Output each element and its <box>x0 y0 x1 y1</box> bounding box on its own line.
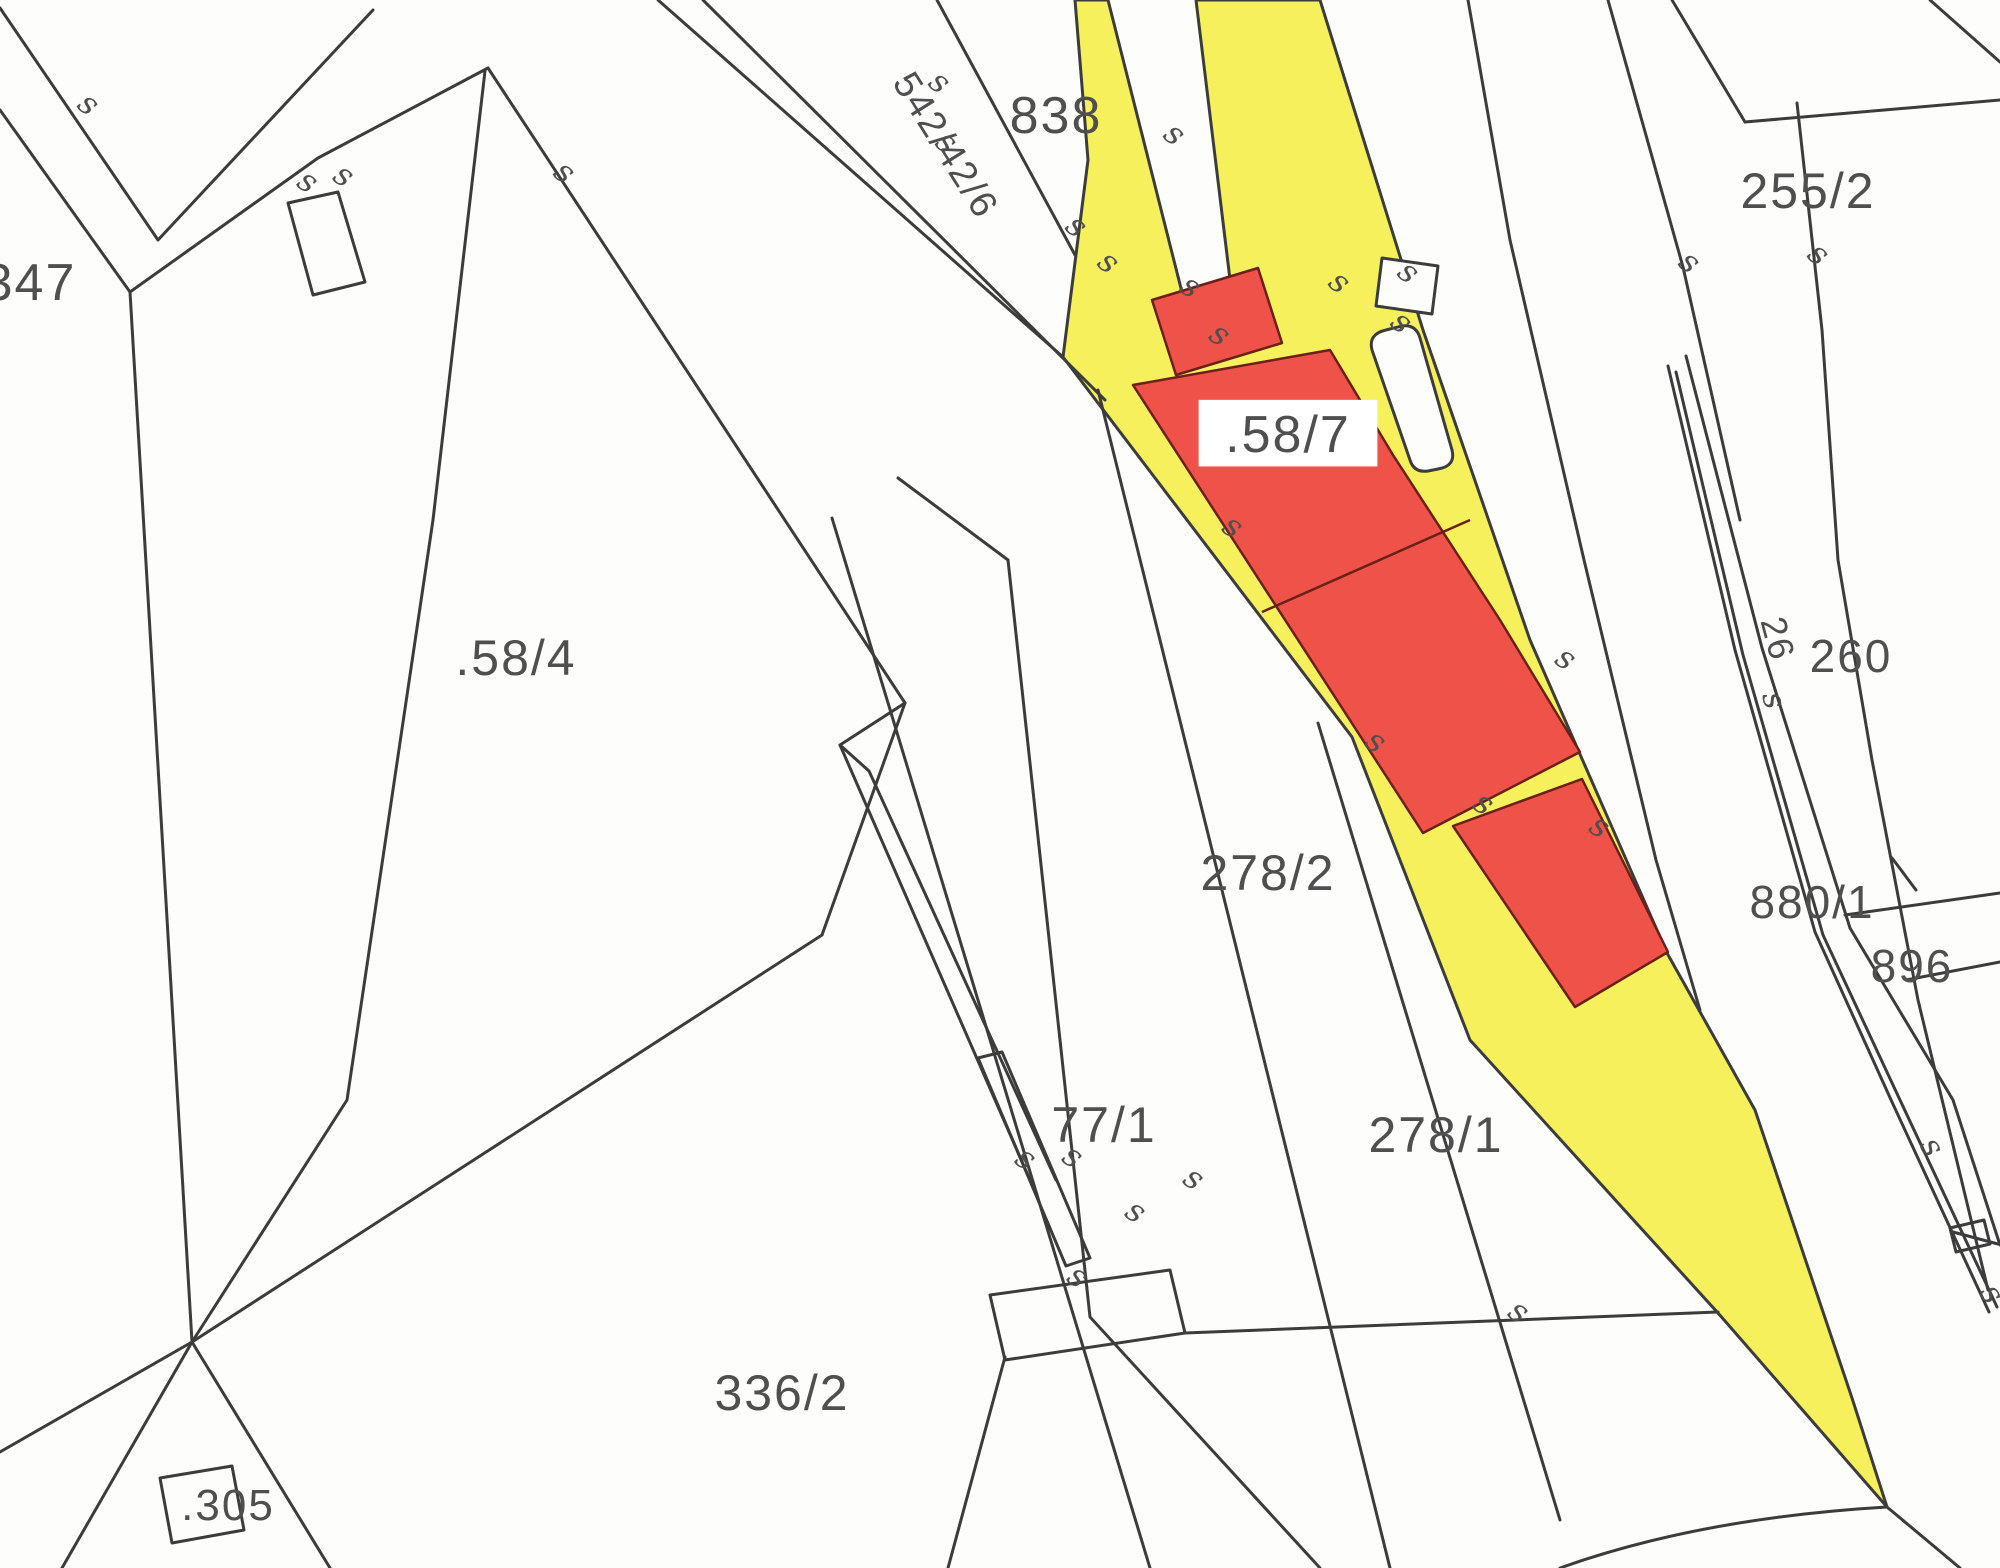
outbuilding-rect <box>288 192 365 295</box>
label-parcel-305: .305 <box>181 1481 275 1530</box>
label-parcel-880-1: 880/1 <box>1749 876 1874 928</box>
boundary-line <box>0 1342 192 1452</box>
label-parcel-255-2: 255/2 <box>1740 163 1875 219</box>
outbuildings <box>160 192 1990 1543</box>
label-parcel-347: 347 <box>0 254 76 312</box>
s-boundary-marker: s <box>1061 1256 1096 1297</box>
s-boundary-marker: s <box>1502 1291 1537 1332</box>
s-boundary-marker: s <box>71 84 108 124</box>
label-parcel-58-7: .58/7 <box>1225 406 1351 464</box>
boundary-line <box>1745 100 2000 122</box>
boundary-line <box>0 8 373 240</box>
boundary-line <box>1930 0 2000 62</box>
boundary-line <box>1185 1312 1718 1333</box>
s-boundary-marker: s <box>1177 1158 1212 1199</box>
label-parcel-278-1: 278/1 <box>1368 1107 1503 1163</box>
s-boundary-marker: s <box>1912 1130 1953 1163</box>
label-parcel-896: 896 <box>1871 940 1954 992</box>
boundary-line <box>192 71 485 1342</box>
label-parcel-260: 260 <box>1810 630 1893 682</box>
parcel-labels: 347542/42/6838255/2.58/7.58/426260278/28… <box>0 65 1953 1530</box>
s-boundary-marker: s <box>1801 234 1838 274</box>
boundary-line <box>1797 103 1988 1290</box>
s-boundary-marker: s <box>327 155 362 196</box>
boundary-line <box>1008 560 1320 1568</box>
boundary-line <box>658 0 1063 357</box>
boundary-line <box>1560 1507 1887 1568</box>
s-boundary-marker: s <box>1754 687 1795 713</box>
boundary-line <box>840 703 905 771</box>
boundary-line <box>62 1342 192 1568</box>
label-road-838: 838 <box>1010 87 1103 145</box>
boundary-line <box>869 771 1056 1180</box>
boundary-line <box>1887 1507 1960 1568</box>
s-boundary-marker: s <box>1549 638 1584 679</box>
boundary-line <box>130 292 192 1342</box>
label-parcel-336-2: 336/2 <box>714 1365 849 1421</box>
cadastral-map-page: 347542/42/6838255/2.58/7.58/426260278/28… <box>0 0 2000 1568</box>
boundary-line <box>948 1357 1005 1568</box>
boundary-line <box>898 478 1008 560</box>
cadastral-map: 347542/42/6838255/2.58/7.58/426260278/28… <box>0 0 2000 1568</box>
label-parcel-58-4: .58/4 <box>455 630 576 686</box>
boundary-line <box>1672 0 1745 122</box>
label-parcel-77-1: 77/1 <box>1051 1097 1156 1153</box>
boundary-line <box>192 1342 330 1568</box>
boundary-line <box>192 935 822 1342</box>
label-parcel-278-2: 278/2 <box>1200 845 1335 901</box>
s-boundary-marker: s <box>1119 1191 1154 1232</box>
label-railway-26: 26 <box>1753 612 1804 665</box>
